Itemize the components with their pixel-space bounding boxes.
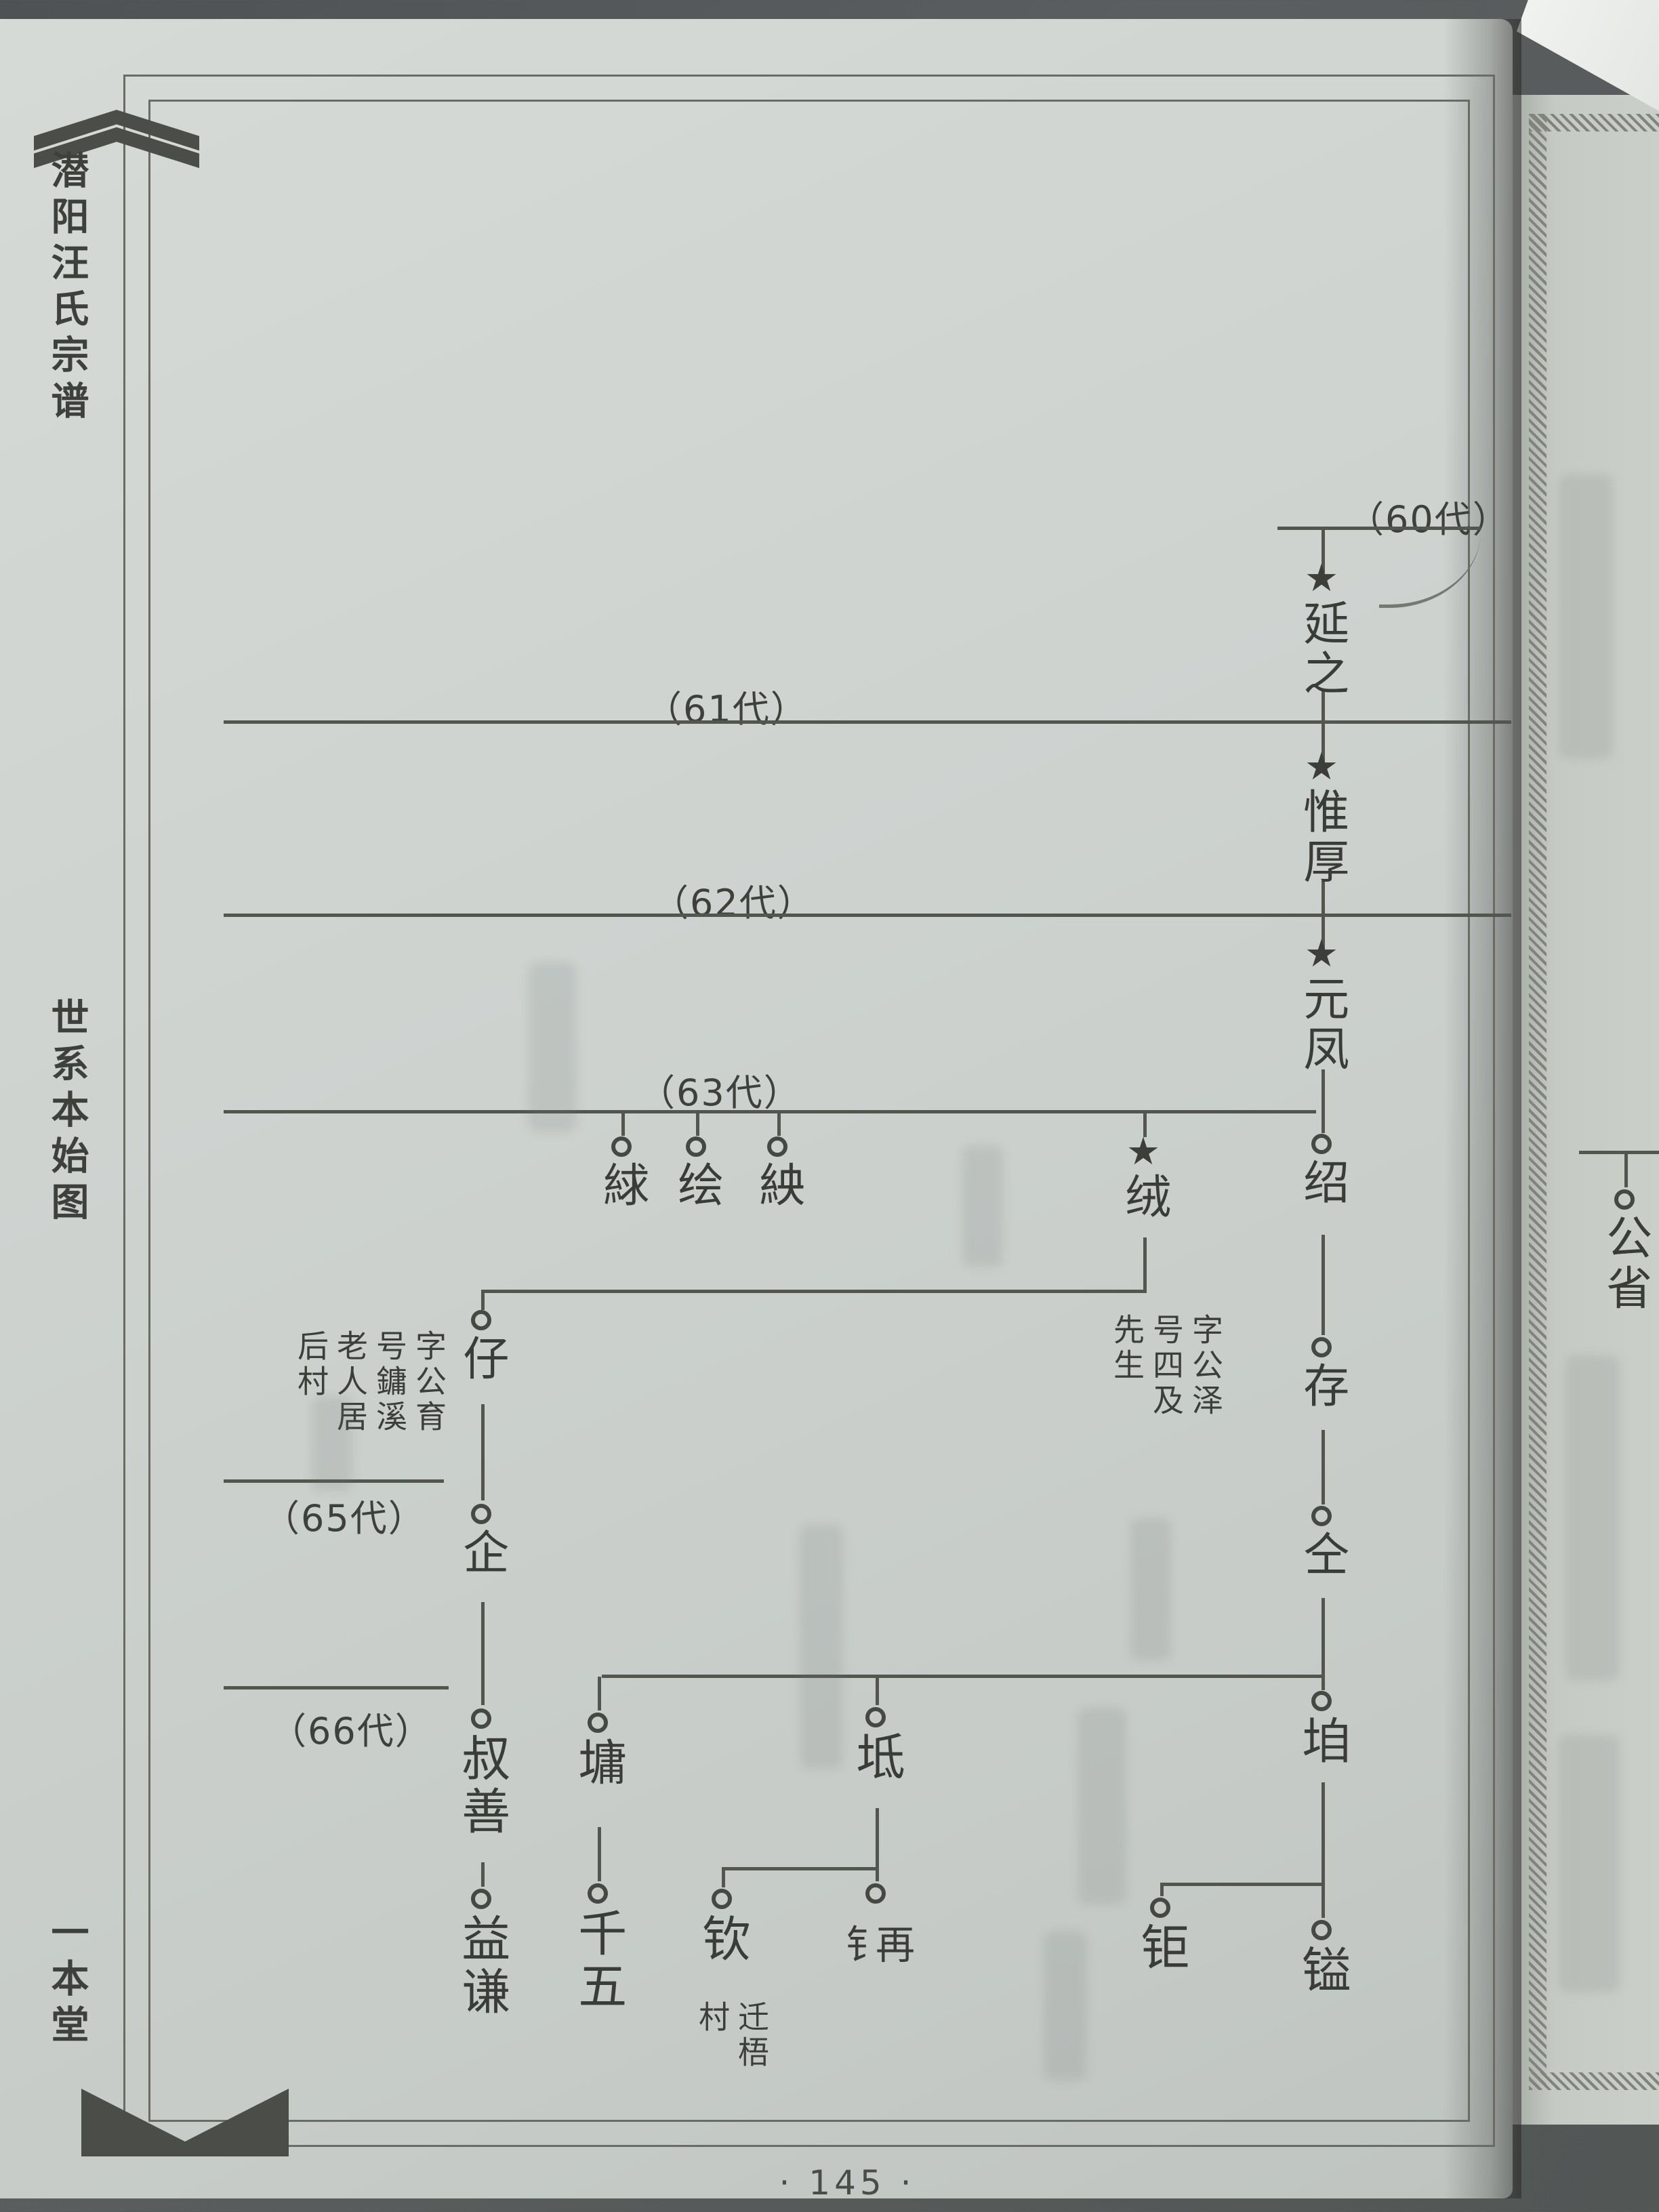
gen-label-62: （62代） (652, 873, 815, 926)
gen-label-60: （60代） (1347, 489, 1511, 543)
connector-line (696, 1113, 699, 1136)
circle-marker-icon (767, 1136, 787, 1157)
gen-label-66: （66代） (270, 1701, 433, 1755)
connector-line (481, 1404, 485, 1500)
node-name: 绘 (672, 1161, 720, 1211)
margin-title-book: 潜阳汪氏宗谱 (35, 150, 98, 435)
circle-marker-icon (471, 1889, 491, 1909)
node-name: 坻 (850, 1732, 901, 1784)
bleed-through-smudge (1565, 1355, 1620, 1681)
circle-marker-icon (1311, 1920, 1332, 1940)
node-name: 钅再 (846, 1913, 905, 1970)
node-name: 公省 (1600, 1214, 1648, 1314)
connector-line (1624, 1152, 1628, 1187)
connector-line (722, 1868, 725, 1887)
node-name: 益谦 (455, 1913, 507, 2019)
node-shao: 绍 (1274, 1134, 1369, 1208)
node-name: 钦 (696, 1913, 747, 1966)
node-name: 墉 (572, 1737, 623, 1790)
bleed-through-smudge (1559, 474, 1613, 759)
connector-line (598, 1677, 601, 1711)
gen60-line (1277, 527, 1481, 530)
node-hui: 绘 (649, 1136, 743, 1211)
connector-line (1143, 1237, 1147, 1293)
annotation-rong: 字公泽号四及先生 (1107, 1313, 1225, 1435)
right-page-border-top (1529, 114, 1659, 131)
connector-line (1322, 1782, 1325, 1918)
gen66-line (224, 1686, 449, 1689)
bleed-through-smudge (529, 962, 576, 1132)
connector-line (621, 1113, 625, 1136)
node-yuanfeng: ★ 元凤 (1274, 935, 1369, 1075)
star-icon: ★ (1305, 935, 1338, 973)
connector-line (481, 1602, 485, 1705)
node-shushan: 叔善 (434, 1708, 529, 1839)
node-name: 绒 (1119, 1172, 1167, 1223)
right-page-border-bottom (1529, 2072, 1659, 2090)
circle-marker-icon (1311, 1506, 1332, 1526)
node-name: 钜 (1134, 1922, 1186, 1975)
bleed-through-smudge (1130, 1518, 1171, 1660)
node-name: 惟厚 (1297, 787, 1345, 888)
circle-marker-icon (1150, 1898, 1170, 1918)
node-qin: 钦 (674, 1889, 769, 1966)
margin-title-chart: 世系本始图 (35, 998, 98, 1242)
node-yanzhi: ★ 延之 (1274, 560, 1369, 699)
connector-line (1322, 1430, 1325, 1504)
star-icon: ★ (1126, 1133, 1160, 1171)
circle-marker-icon (1311, 1691, 1332, 1711)
node-name: 存 (1297, 1361, 1345, 1412)
node-name: 镒 (1296, 1944, 1347, 1997)
bleed-through-smudge (312, 1396, 352, 1491)
node-weihou: ★ 惟厚 (1274, 748, 1369, 888)
circle-marker-icon (588, 1713, 608, 1733)
connector-line (876, 1808, 879, 1881)
circle-marker-icon (1311, 1134, 1332, 1154)
node-name: 千五 (572, 1908, 623, 2013)
gen-label-65: （65代） (263, 1488, 426, 1542)
node-name: 絿 (597, 1161, 645, 1211)
circle-marker-icon (712, 1889, 732, 1909)
node-jinzai: 钅再 (828, 1883, 923, 1970)
connector-line (481, 1862, 485, 1887)
gen61-line (224, 720, 1511, 724)
node-yiqian: 益谦 (434, 1889, 529, 2019)
circle-marker-icon (471, 1504, 491, 1524)
circle-marker-icon (686, 1136, 706, 1157)
gen67-branch-line-ji (1160, 1883, 1323, 1886)
bleed-through-smudge (1559, 1735, 1620, 1992)
node-name: 绍 (1297, 1158, 1345, 1208)
connector-line (876, 1677, 879, 1705)
node-name: 延之 (1297, 599, 1345, 699)
circle-marker-icon (471, 1310, 491, 1330)
node-yong: 墉 (550, 1713, 645, 1790)
node-yang: 紻 (730, 1136, 825, 1211)
star-icon: ★ (1305, 560, 1338, 598)
margin-title-hall: 一本堂 (35, 1912, 98, 2062)
node-ju: 钜 (1113, 1898, 1208, 1975)
connector-line (481, 1291, 485, 1310)
node-tong: 仝 (1274, 1506, 1369, 1580)
node-rong: ★ 绒 (1096, 1133, 1191, 1223)
star-icon: ★ (1305, 748, 1338, 786)
circle-marker-icon (865, 1707, 886, 1727)
node-qi: 企 (434, 1504, 529, 1578)
annotation-qin: 迁梧村 (693, 2001, 771, 2083)
node-name: 企 (457, 1528, 505, 1578)
node-name: 紻 (753, 1161, 801, 1211)
node-name: 垍 (1296, 1715, 1347, 1768)
bleed-through-smudge (1078, 1708, 1126, 1904)
gen-label-63: （63代） (638, 1063, 802, 1116)
node-gongsheng-next-page: 公省 (1577, 1189, 1659, 1314)
connector-line (1160, 1884, 1164, 1896)
connector-line (1322, 1069, 1325, 1133)
gen62-line (224, 914, 1511, 917)
circle-marker-icon (611, 1136, 632, 1157)
circle-marker-icon (471, 1708, 491, 1729)
circle-marker-icon (1614, 1189, 1635, 1210)
connector-line (1322, 1235, 1325, 1335)
node-name: 仔 (457, 1334, 505, 1385)
node-name: 仝 (1297, 1530, 1345, 1580)
node-cun: 存 (1274, 1337, 1369, 1412)
node-name: 叔善 (455, 1733, 507, 1839)
gen66-sibling-line (602, 1675, 1323, 1678)
node-qianwu: 千五 (550, 1883, 645, 2013)
bleed-through-smudge (800, 1525, 843, 1769)
page-number: · 145 · (773, 2163, 922, 2203)
bleed-through-smudge (962, 1145, 1003, 1267)
gen-label-61: （61代） (645, 679, 808, 733)
bleed-through-smudge (1044, 1931, 1087, 2081)
connector-line (1322, 1598, 1325, 1690)
connector-line (777, 1113, 781, 1136)
circle-marker-icon (588, 1883, 608, 1904)
right-page-border-band (1529, 114, 1547, 2089)
connector-line (598, 1827, 601, 1881)
next-page-line (1579, 1151, 1659, 1154)
gen67-branch-line-chi (722, 1867, 878, 1870)
circle-marker-icon (865, 1883, 886, 1904)
node-ji: 垍 (1274, 1691, 1369, 1768)
node-name: 元凤 (1297, 975, 1345, 1075)
gen64-branch-line (481, 1290, 1147, 1293)
photo-of-genealogy-page: { "icons": { "star": "★" }, "margin": { … (0, 0, 1659, 2212)
circle-marker-icon (1311, 1337, 1332, 1357)
gen63-sibling-line (224, 1110, 1316, 1113)
node-yi: 镒 (1274, 1920, 1369, 1997)
